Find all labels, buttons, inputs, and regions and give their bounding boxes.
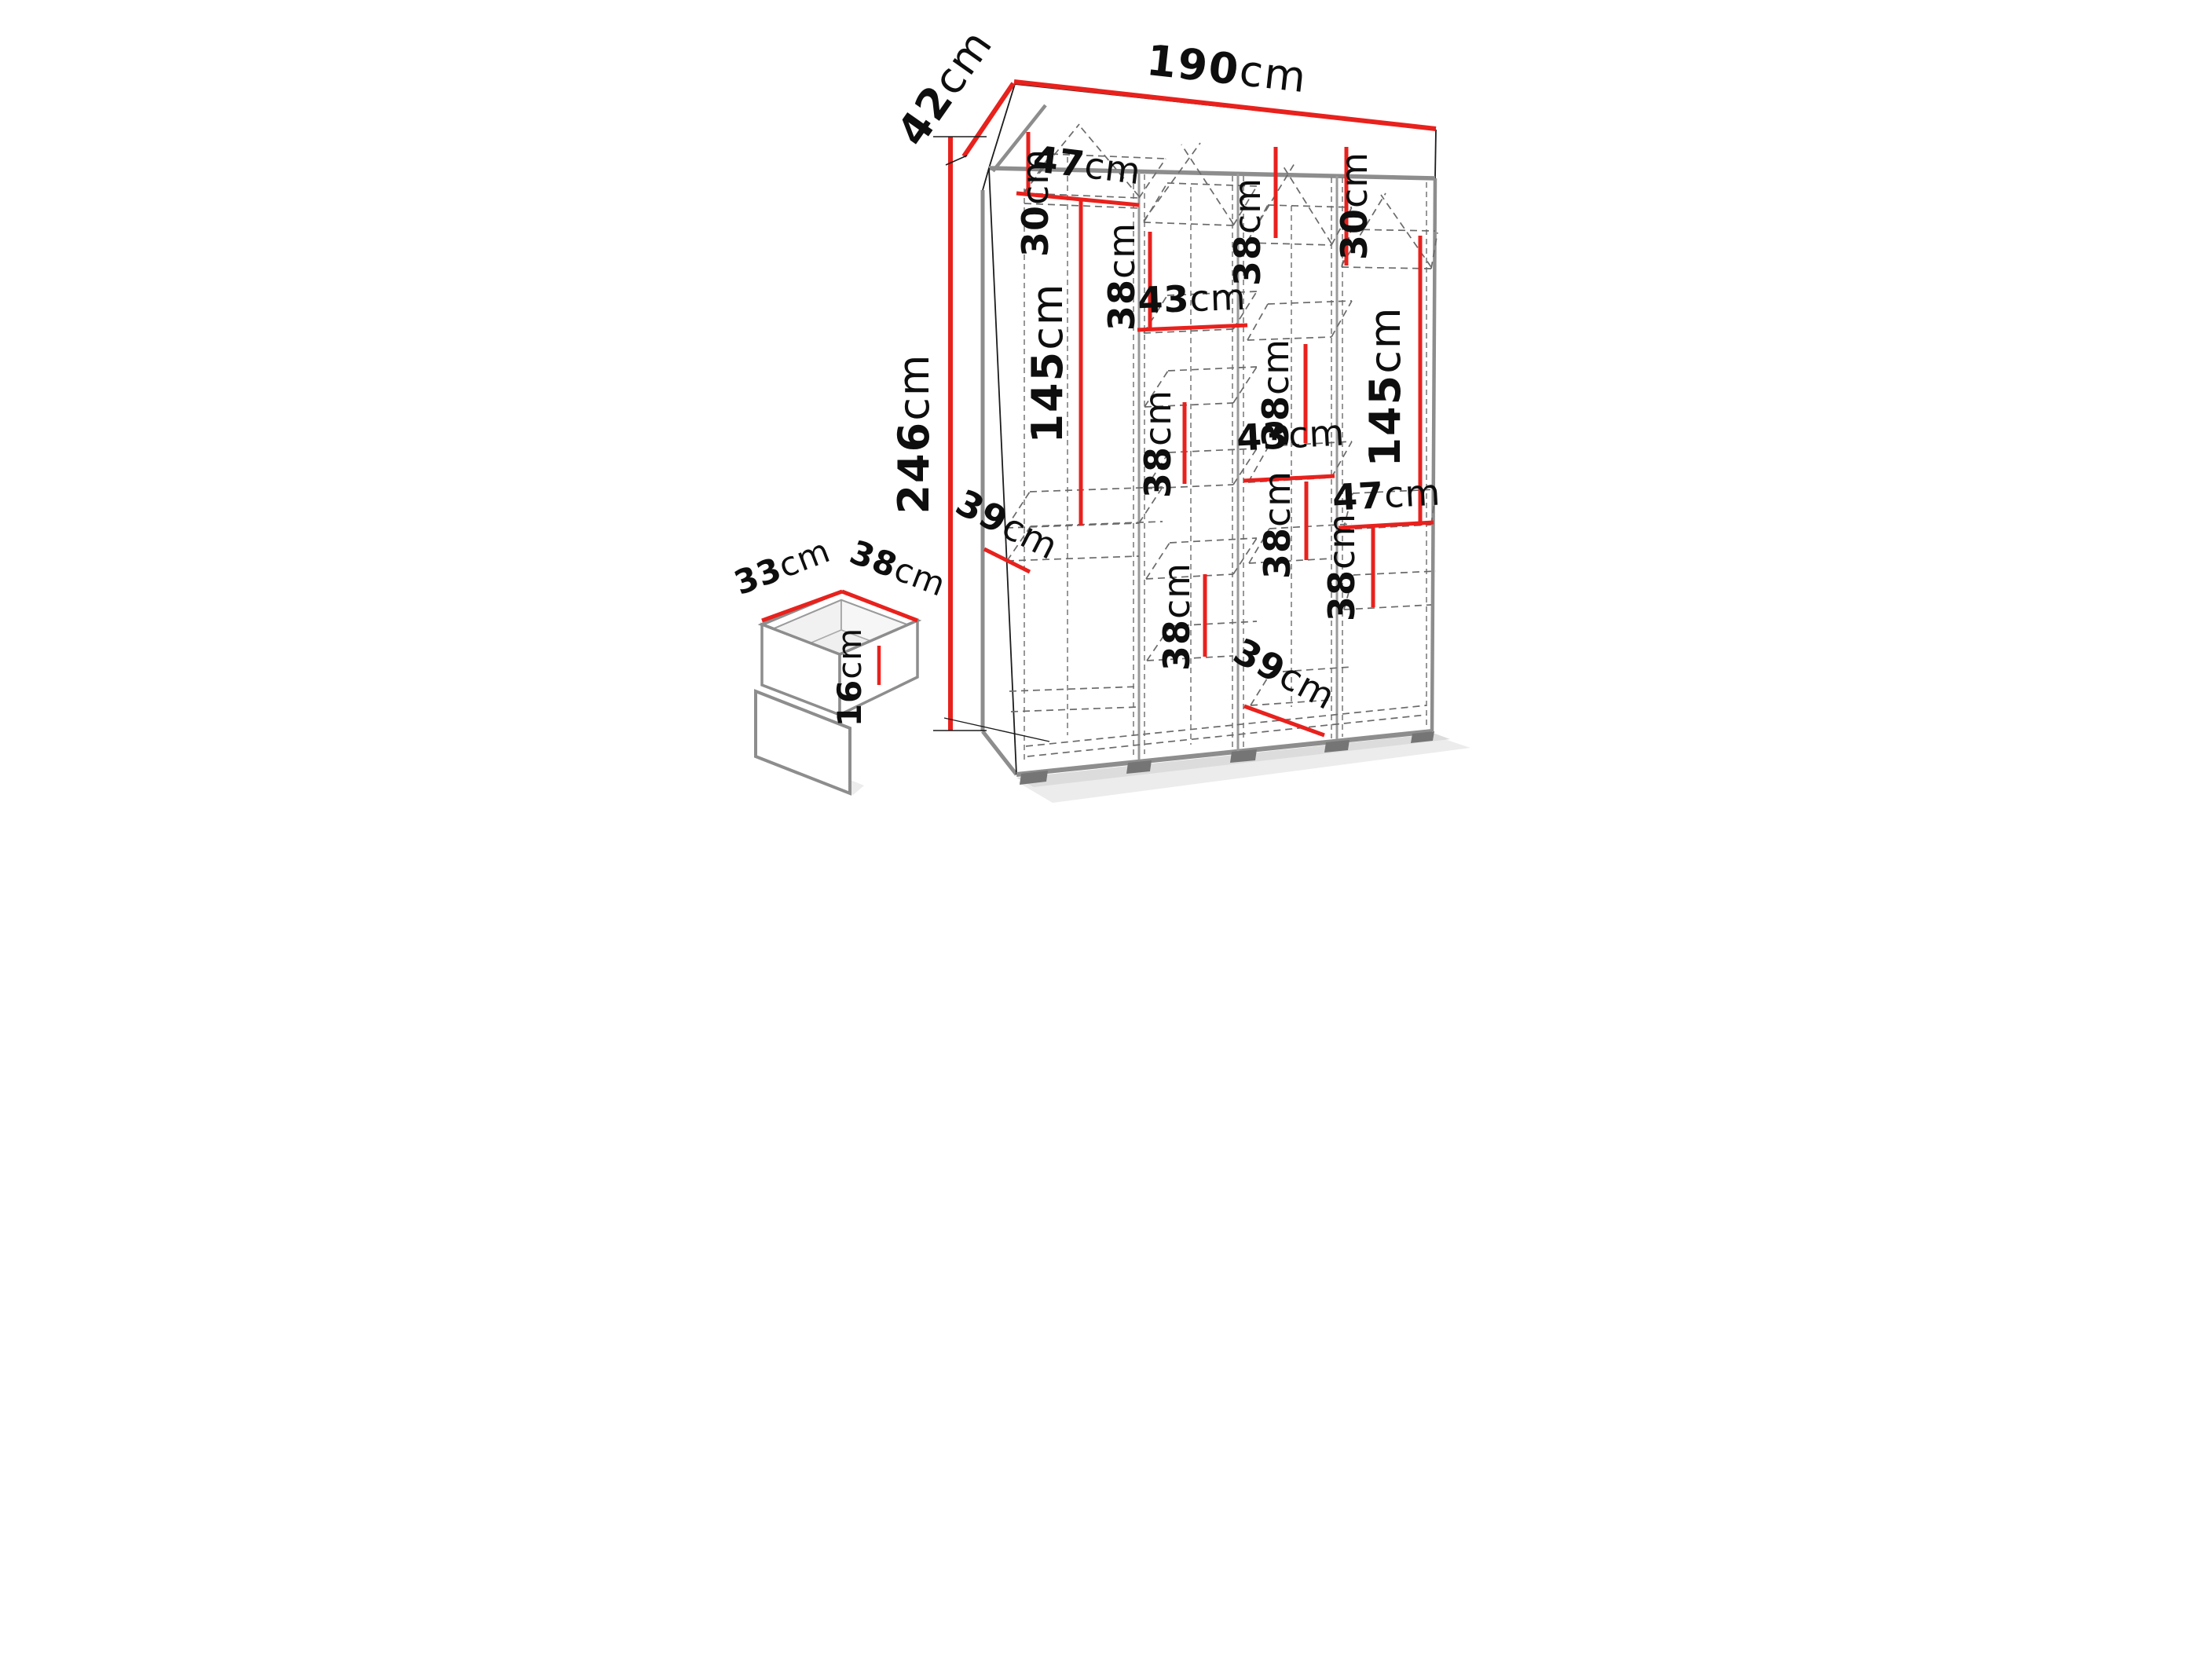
front-left-edge	[989, 168, 1016, 775]
dim-label-col4-145: 145cm	[1361, 306, 1410, 467]
dim-label-col3-38-low: 38cm	[1256, 471, 1298, 579]
dim-label-col3-43: 43cm	[1236, 411, 1346, 459]
left-top-corner	[983, 168, 989, 190]
floor-shadow	[759, 734, 1470, 803]
drawer-callout-line	[944, 718, 1049, 742]
left-bottom-slope	[983, 731, 1016, 775]
witness-ticks	[933, 137, 987, 731]
dim-label-col2-38-low: 38cm	[1155, 562, 1198, 671]
dim-label-col3-39: 39cm	[1227, 630, 1342, 719]
dim-label-width190: 190cm	[1144, 35, 1310, 102]
dim-label-col2-38-mid: 38cm	[1137, 390, 1179, 498]
dim-label-col4-38: 38cm	[1320, 513, 1363, 621]
dim-label-col1-145: 145cm	[1023, 282, 1072, 443]
diagram-page: 42cm 190cm 246cm 30cm 47cm 145cm 39cm 38…	[553, 0, 1659, 829]
dim-label-col1-39: 39cm	[949, 481, 1065, 568]
wardrobe-dimension-diagram: 42cm 190cm 246cm 30cm 47cm 145cm 39cm 38…	[553, 0, 1659, 829]
dim-label-col3-38-top: 38cm	[1226, 178, 1269, 286]
dim-label-depth42: 42cm	[888, 20, 1003, 156]
dim-label-col4-47: 47cm	[1331, 471, 1442, 518]
top-right-edge	[1435, 130, 1436, 178]
dim-label-height246: 246cm	[889, 353, 939, 514]
dim-label-col2-38-top: 38cm	[1101, 222, 1143, 331]
front-right-edge	[1432, 178, 1435, 731]
dim-label-drawer-38: 38cm	[844, 533, 951, 604]
dim-label-col4-30: 30cm	[1333, 152, 1375, 260]
dim-label-drawer-16: 16cm	[830, 628, 869, 727]
dim-label-drawer-33: 33cm	[729, 531, 836, 602]
